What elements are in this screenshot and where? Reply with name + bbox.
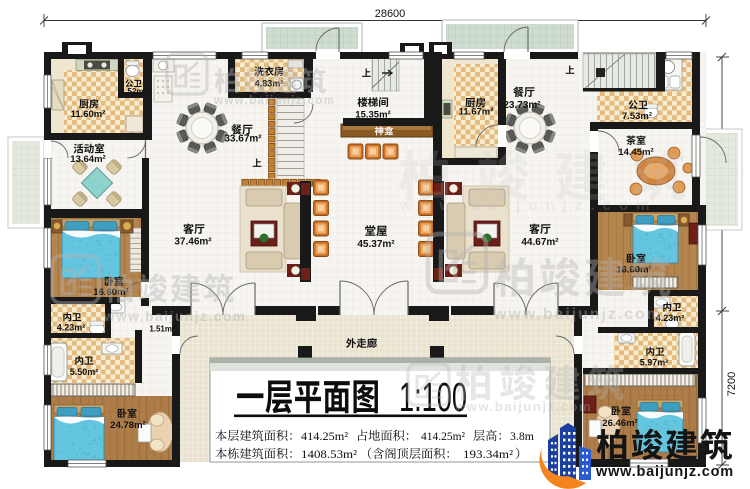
svg-text:414.25m²: 414.25m² [301, 429, 348, 443]
svg-text:13.64m²: 13.64m² [70, 154, 105, 165]
svg-text:33.67m²: 33.67m² [224, 134, 262, 145]
svg-text:23.73m²: 23.73m² [503, 100, 541, 111]
svg-text:11.67m²: 11.67m² [459, 107, 494, 118]
svg-text:www.baijunjz.com: www.baijunjz.com [103, 309, 246, 324]
svg-text:www.baijunjz.com: www.baijunjz.com [595, 464, 734, 480]
svg-text:5.97m²: 5.97m² [640, 358, 669, 368]
svg-text:45.37m²: 45.37m² [357, 239, 395, 250]
svg-text:26.46m²: 26.46m² [602, 418, 637, 429]
svg-text:4.23m²: 4.23m² [57, 323, 86, 333]
svg-text:www.baijunjz.com: www.baijunjz.com [399, 197, 657, 214]
svg-text:3.8m: 3.8m [510, 429, 534, 443]
svg-text:5.50m²: 5.50m² [70, 367, 99, 377]
svg-text:37.46m²: 37.46m² [174, 237, 212, 248]
svg-text:193.34m²: 193.34m² [463, 447, 514, 461]
svg-text:44.67m²: 44.67m² [521, 237, 559, 248]
svg-text:7200: 7200 [726, 372, 738, 396]
svg-text:24.78m²: 24.78m² [110, 420, 145, 431]
svg-text:1.51m²: 1.51m² [149, 325, 175, 334]
svg-text:7.53m²: 7.53m² [622, 111, 652, 122]
svg-text:11.60m²: 11.60m² [71, 109, 106, 120]
svg-text:1408.53m²: 1408.53m² [301, 447, 357, 461]
svg-text:15.35m²: 15.35m² [355, 110, 390, 121]
svg-text:www.baijunjz.com: www.baijunjz.com [213, 95, 335, 107]
svg-text:1.52m²: 1.52m² [121, 87, 147, 96]
svg-text:414.25m²: 414.25m² [421, 429, 465, 443]
svg-text:www.baijunjz.com: www.baijunjz.com [493, 306, 663, 323]
svg-text:28600: 28600 [375, 8, 406, 20]
svg-text:www.baijunjz.com: www.baijunjz.com [454, 399, 592, 414]
